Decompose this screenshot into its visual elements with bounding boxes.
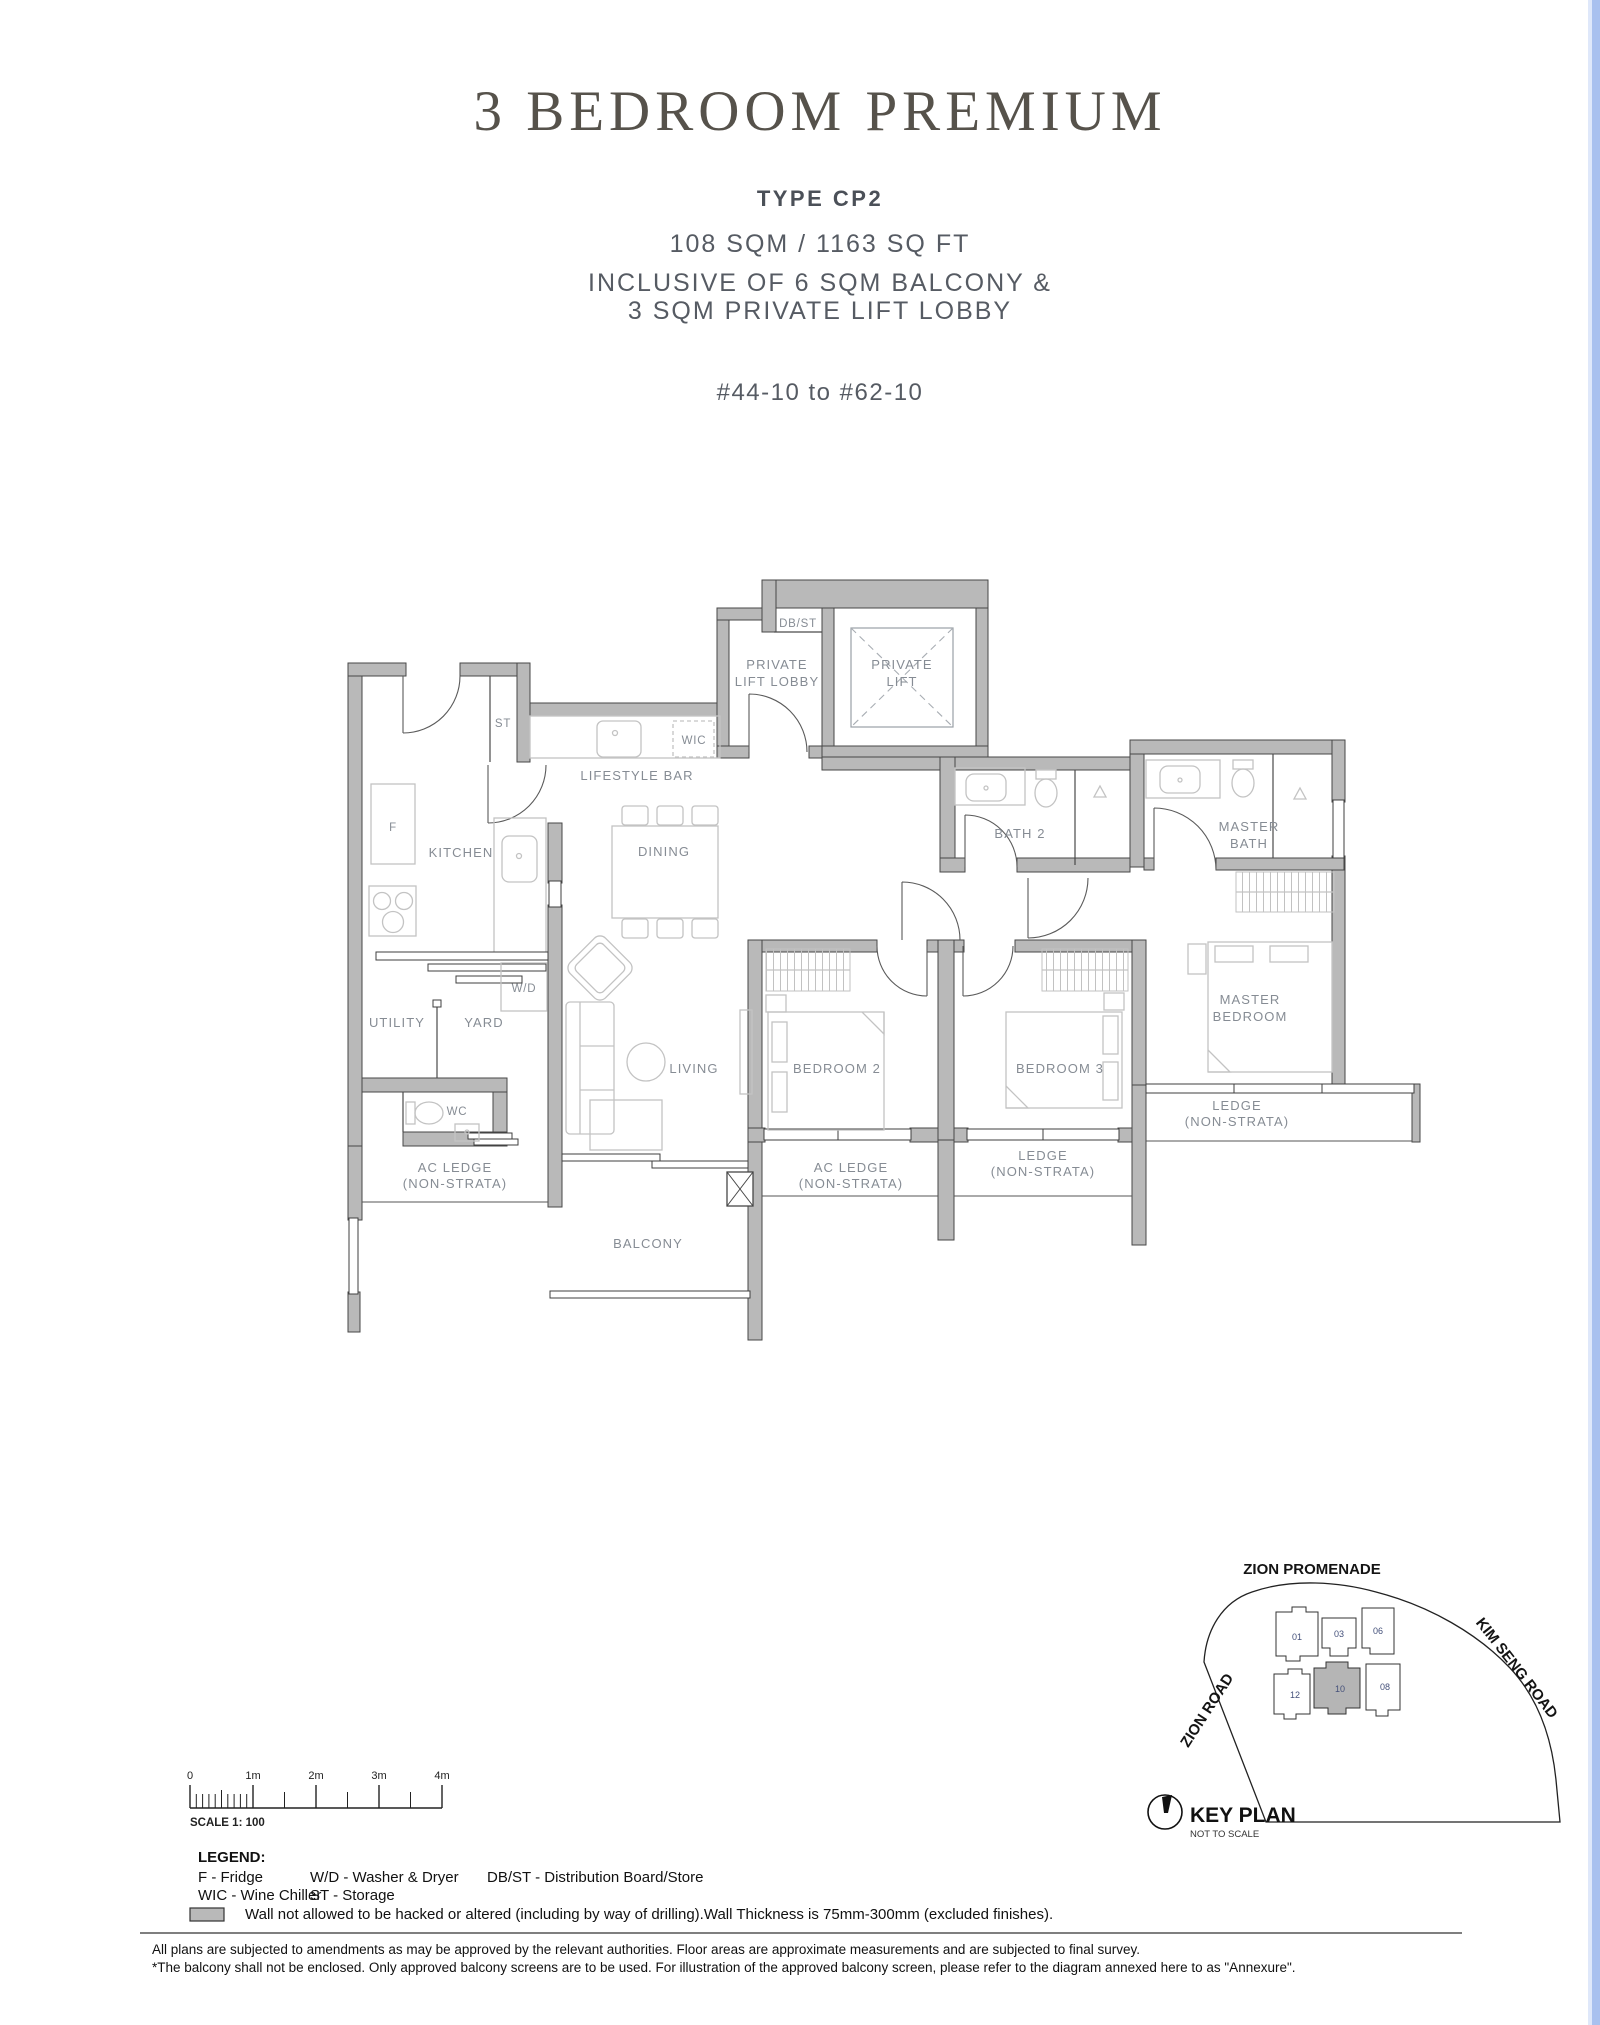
road-label-zion-road: ZION ROAD — [1177, 1670, 1237, 1750]
legend-block: LEGEND: F - Fridge W/D - Washer & Dryer … — [190, 1849, 1053, 1923]
header-block: 3 BEDROOM PREMIUM TYPE CP2 108 SQM / 116… — [473, 80, 1166, 406]
corridor-door — [902, 882, 960, 940]
legend-wall-note: Wall not allowed to be hacked or altered… — [245, 1906, 1053, 1923]
room-label-living: LIVING — [669, 1061, 718, 1076]
bath2-door — [965, 815, 1017, 867]
bedroom3-wardrobe — [1042, 949, 1128, 991]
legend-item-fridge: F - Fridge — [198, 1869, 263, 1886]
wc-pocket-door — [468, 1133, 512, 1139]
bedroom2-nightstand — [766, 995, 786, 1012]
unit-area: 108 SQM / 1163 SQ FT — [670, 230, 971, 258]
svg-text:(NON-STRATA): (NON-STRATA) — [991, 1164, 1095, 1179]
bedroom2-door — [877, 946, 927, 996]
ledge-label-mid: LEDGE — [1018, 1148, 1068, 1163]
room-label-wd: W/D — [512, 983, 537, 995]
svg-text:LIFT LOBBY: LIFT LOBBY — [735, 674, 819, 689]
svg-text:4m: 4m — [434, 1770, 449, 1782]
unit-range: #44-10 to #62-10 — [717, 379, 924, 406]
svg-text:LIFT: LIFT — [886, 674, 917, 689]
room-label-private-lift: PRIVATE — [871, 657, 932, 672]
bedroom3-nightstand — [1104, 993, 1124, 1010]
svg-text:12: 12 — [1290, 1690, 1300, 1700]
svg-text:(NON-STRATA): (NON-STRATA) — [403, 1176, 507, 1191]
room-label-bedroom2: BEDROOM 2 — [793, 1061, 881, 1076]
svg-text:2m: 2m — [308, 1770, 323, 1782]
kitchen-door — [488, 765, 546, 823]
room-label-balcony: BALCONY — [613, 1236, 683, 1251]
room-label-lifestyle-bar: LIFESTYLE BAR — [580, 768, 693, 783]
svg-text:03: 03 — [1334, 1629, 1344, 1639]
footer-line2: *The balcony shall not be enclosed. Only… — [152, 1960, 1296, 1975]
bedroom3-bed — [1006, 1012, 1122, 1108]
master-nightstand — [1188, 944, 1206, 974]
room-label-bath2: BATH 2 — [994, 826, 1045, 841]
svg-text:01: 01 — [1292, 1632, 1302, 1642]
dining-table — [612, 826, 718, 918]
side-table — [627, 1043, 665, 1081]
svg-text:06: 06 — [1373, 1626, 1383, 1636]
room-label-master-bedroom: MASTER — [1220, 992, 1281, 1007]
room-label-yard: YARD — [464, 1015, 504, 1030]
svg-text:08: 08 — [1380, 1682, 1390, 1692]
key-plan-title: KEY PLAN — [1190, 1804, 1296, 1827]
armchair — [565, 933, 636, 1004]
legend-heading: LEGEND: — [198, 1849, 266, 1866]
unit-type: TYPE CP2 — [757, 186, 883, 211]
shower-head-icon — [1294, 788, 1306, 799]
room-label-wc: WC — [447, 1106, 468, 1118]
bedroom3-door — [963, 946, 1013, 996]
svg-text:10: 10 — [1335, 1684, 1345, 1694]
wc-toilet — [406, 1102, 415, 1124]
bedroom2-wardrobe — [766, 949, 850, 991]
scale-text: SCALE 1: 100 — [190, 1817, 265, 1829]
coffee-table — [590, 1100, 662, 1150]
room-label-kitchen: KITCHEN — [429, 845, 494, 860]
north-arrow-icon — [1148, 1795, 1182, 1829]
master-bath-toilet — [1233, 760, 1253, 769]
key-plan-subtitle: NOT TO SCALE — [1190, 1829, 1259, 1840]
room-label-dining: DINING — [638, 844, 690, 859]
legend-item-dbst: DB/ST - Distribution Board/Store — [487, 1869, 703, 1886]
scale-bar — [190, 1785, 442, 1808]
svg-text:(NON-STRATA): (NON-STRATA) — [1185, 1114, 1289, 1129]
floor-plan-page: 3 BEDROOM PREMIUM TYPE CP2 108 SQM / 116… — [0, 0, 1600, 2025]
legend-wall-swatch — [190, 1908, 224, 1921]
inclusive-line2: 3 SQM PRIVATE LIFT LOBBY — [628, 297, 1012, 325]
road-label-zion-promenade: ZION PROMENADE — [1243, 1561, 1381, 1578]
bar-sink — [597, 721, 641, 757]
svg-text:BEDROOM: BEDROOM — [1213, 1009, 1288, 1024]
room-label-bedroom3: BEDROOM 3 — [1016, 1061, 1104, 1076]
master-bath-door — [1154, 808, 1216, 870]
svg-text:1m: 1m — [245, 1770, 260, 1782]
lift-lobby-door — [749, 694, 807, 752]
shower-head-icon — [1094, 786, 1106, 797]
room-label-fridge: F — [389, 822, 397, 834]
svg-text:(NON-STRATA): (NON-STRATA) — [799, 1176, 903, 1191]
svg-text:BATH: BATH — [1230, 836, 1268, 851]
room-label-private-lift-lobby: PRIVATE — [746, 657, 807, 672]
ac-ledge-label-left: AC LEDGE — [418, 1160, 493, 1175]
bath2-toilet — [1036, 770, 1056, 779]
footer-block: All plans are subjected to amendments as… — [140, 1933, 1462, 1975]
balcony-sliding-door — [562, 1154, 660, 1161]
svg-text:3m: 3m — [371, 1770, 386, 1782]
ac-unit-box — [727, 1172, 753, 1206]
kitchen-counter — [494, 818, 546, 958]
room-label-st: ST — [495, 718, 511, 730]
floor-plan-canvas: 3 BEDROOM PREMIUM TYPE CP2 108 SQM / 116… — [0, 0, 1600, 2025]
key-plan: ZION PROMENADE KIM SENG ROAD ZION ROAD 0… — [1148, 1561, 1561, 1840]
ac-ledge-label-mid: AC LEDGE — [814, 1160, 889, 1175]
road-label-kim-seng: KIM SENG ROAD — [1472, 1615, 1561, 1722]
room-label-dbst: DB/ST — [779, 618, 817, 630]
legend-item-wic: WIC - Wine Chiller — [198, 1887, 321, 1904]
master-bedroom-door — [1028, 878, 1088, 938]
legend-item-st: ST - Storage — [310, 1887, 395, 1904]
page-title: 3 BEDROOM PREMIUM — [473, 80, 1166, 143]
ledge-label-right: LEDGE — [1212, 1098, 1262, 1113]
room-label-utility: UTILITY — [369, 1015, 425, 1030]
svg-text:0: 0 — [187, 1770, 193, 1782]
room-label-wic: WIC — [682, 735, 707, 747]
footer-line1: All plans are subjected to amendments as… — [152, 1942, 1140, 1957]
master-wardrobe — [1236, 872, 1334, 912]
entry-door — [403, 676, 460, 733]
inclusive-line1: INCLUSIVE OF 6 SQM BALCONY & — [588, 269, 1052, 297]
room-label-master-bath: MASTER — [1219, 819, 1280, 834]
key-plan-buildings: 01 03 06 12 10 08 — [1274, 1607, 1400, 1719]
legend-item-washer: W/D - Washer & Dryer — [310, 1869, 459, 1886]
right-edge-strip — [1588, 0, 1600, 2025]
